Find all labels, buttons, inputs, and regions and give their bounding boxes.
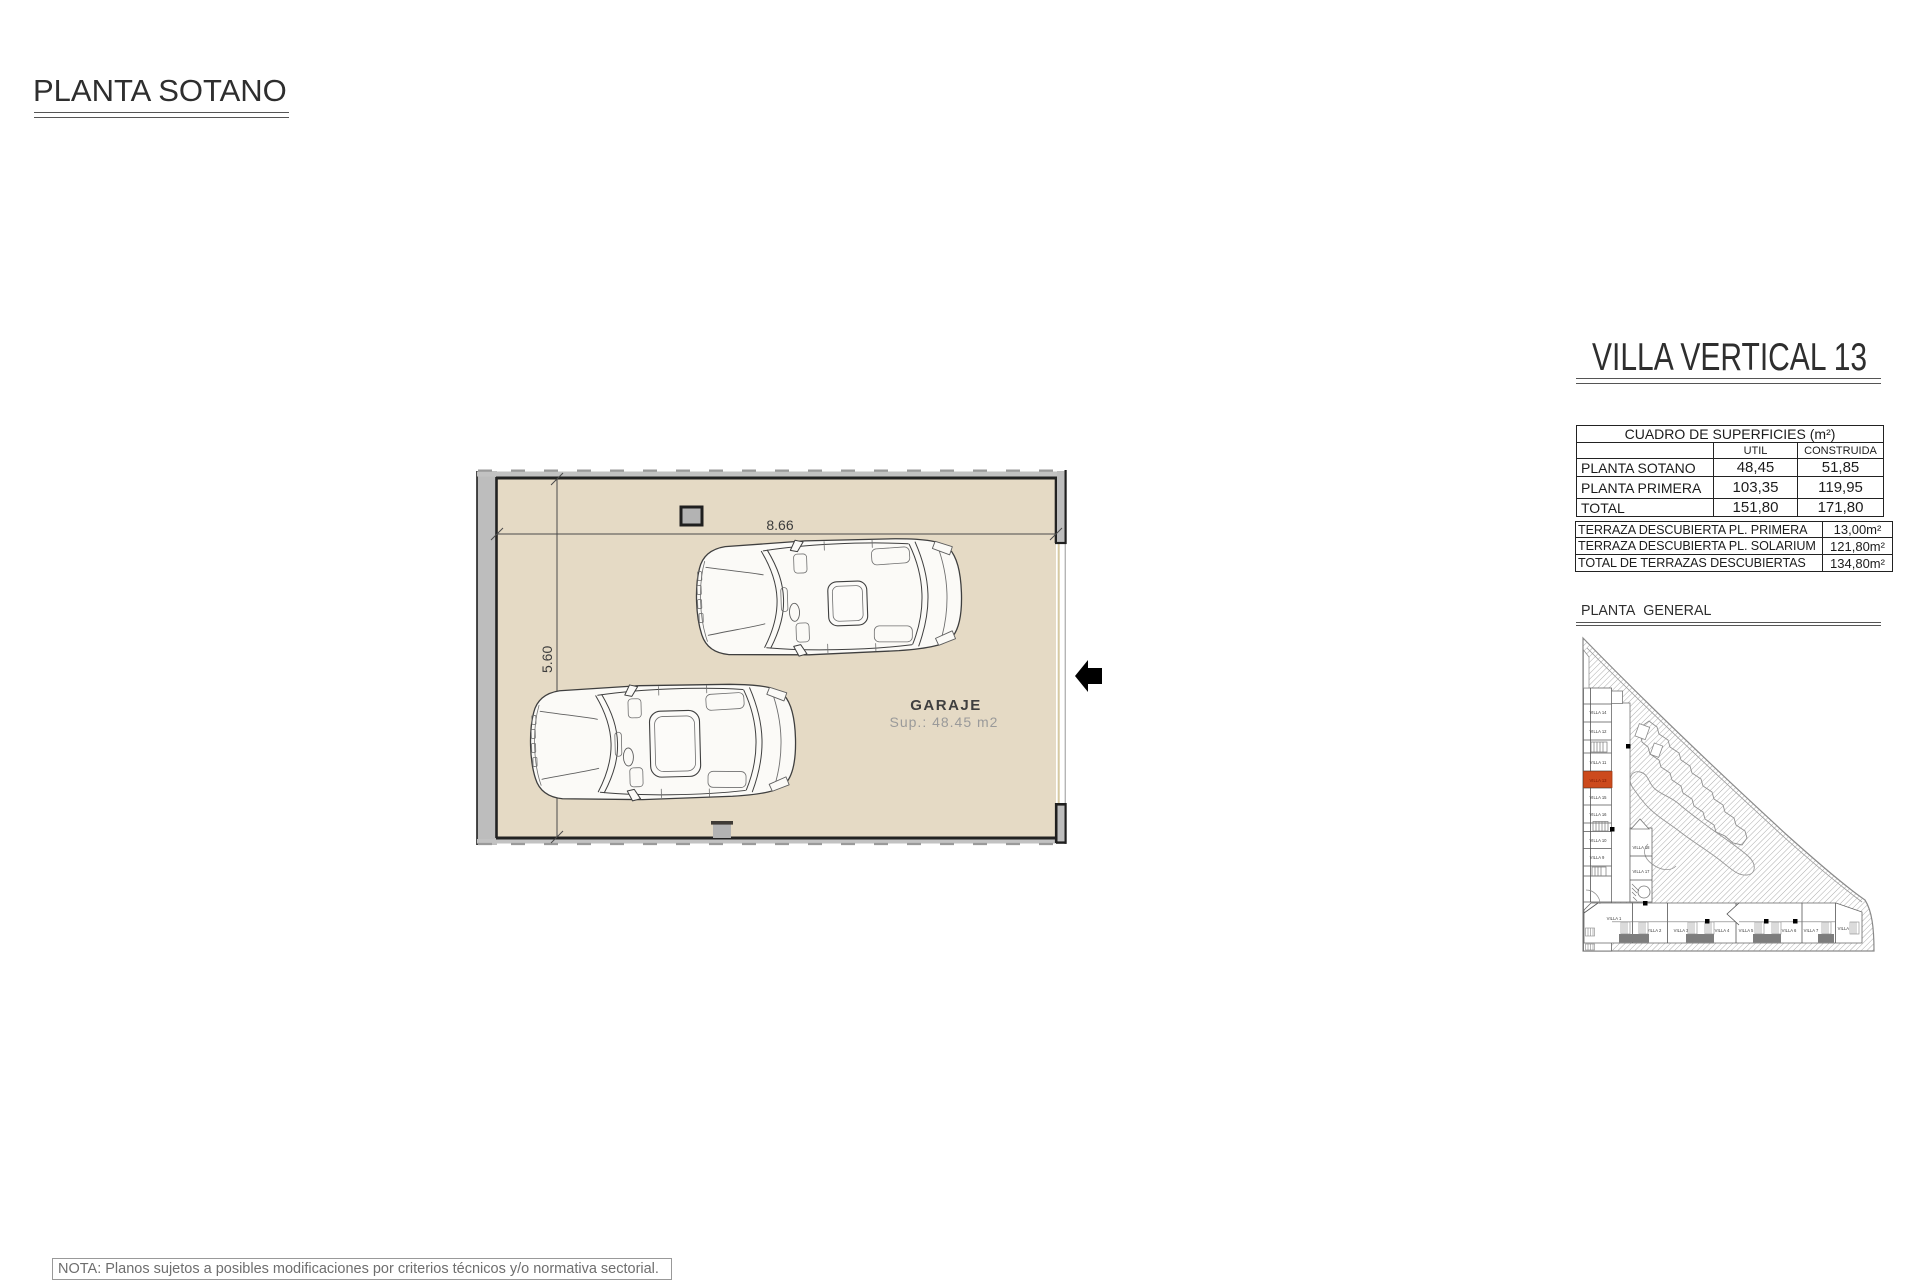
svg-text:VILLA 18: VILLA 18: [1633, 845, 1651, 850]
svg-text:VILLA 6: VILLA 6: [1782, 928, 1797, 933]
svg-text:VILLA 16: VILLA 16: [1590, 812, 1608, 817]
svg-text:VILLA 1: VILLA 1: [1607, 916, 1622, 921]
svg-text:VILLA 12: VILLA 12: [1590, 729, 1608, 734]
svg-text:VILLA 3: VILLA 3: [1674, 928, 1689, 933]
svg-text:VILLA 9: VILLA 9: [1590, 855, 1605, 860]
svg-text:VILLA 2: VILLA 2: [1647, 928, 1662, 933]
svg-text:VILLA 13: VILLA 13: [1590, 778, 1608, 783]
svg-text:Sup.: 48.45 m2: Sup.: 48.45 m2: [890, 714, 999, 730]
svg-text:GARAJE: GARAJE: [910, 697, 982, 714]
svg-text:VILLA 11: VILLA 11: [1590, 760, 1607, 765]
svg-text:VILLA 4: VILLA 4: [1715, 928, 1730, 933]
svg-text:VILLA 7: VILLA 7: [1804, 928, 1819, 933]
svg-text:5.60: 5.60: [539, 646, 555, 673]
svg-text:VILLA 14: VILLA 14: [1590, 710, 1608, 715]
svg-text:VILLA 5: VILLA 5: [1739, 928, 1754, 933]
svg-text:8.66: 8.66: [766, 517, 793, 533]
svg-text:VILLA 15: VILLA 15: [1590, 795, 1608, 800]
svg-text:VILLA 17: VILLA 17: [1633, 869, 1651, 874]
svg-text:VILLA 10: VILLA 10: [1590, 838, 1608, 843]
